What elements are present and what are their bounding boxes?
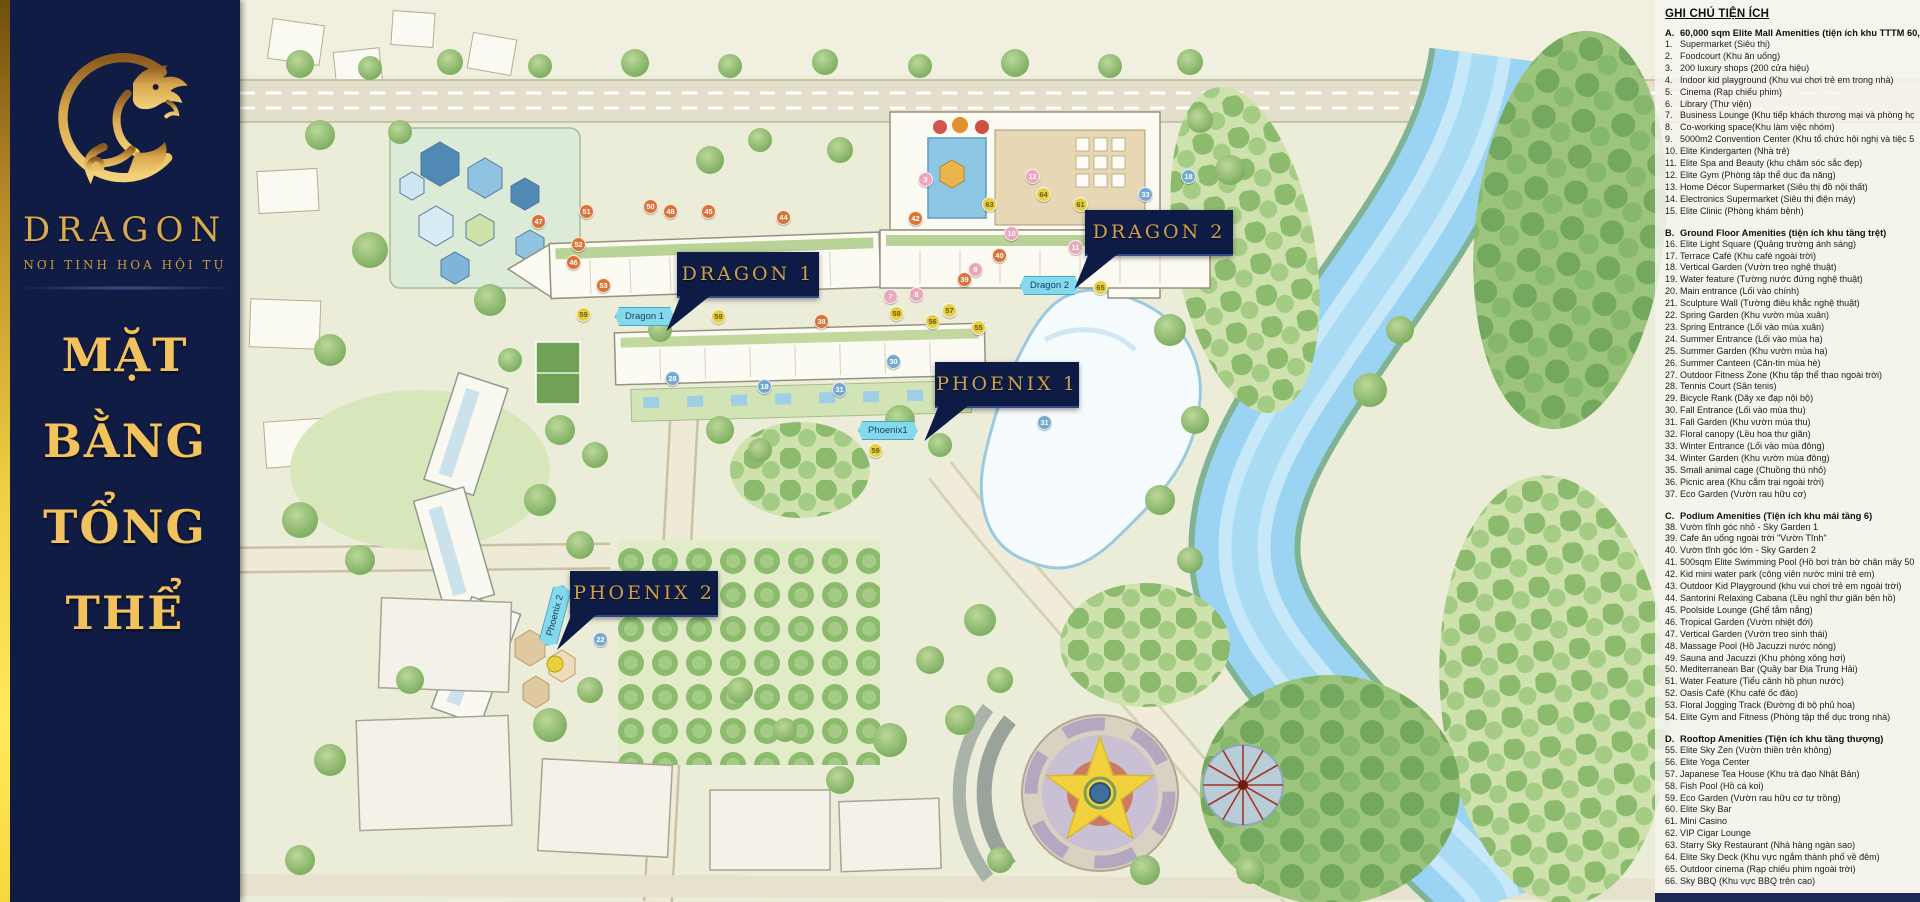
- poster-title-line: MẶT: [62, 332, 189, 378]
- legend-section-heading: B.Ground Floor Amenities (tiện ích khu t…: [1665, 227, 1914, 239]
- amenity-marker-40: 40: [992, 248, 1007, 263]
- amenity-marker-47: 47: [531, 214, 546, 229]
- amenity-marker-53: 53: [596, 278, 611, 293]
- legend-item: 45.Poolside Lounge (Ghế tắm nắng): [1665, 605, 1914, 617]
- poster-title-line: THỂ: [66, 590, 185, 636]
- legend-item: 8.Co-working space(Khu làm việc nhóm): [1665, 122, 1914, 134]
- legend-item: 10.Elite Kindergarten (Nhà trẻ): [1665, 146, 1914, 158]
- legend-item: 4.Indoor kid playground (Khu vui chơi tr…: [1665, 75, 1914, 87]
- legend-item: 18.Vertical Garden (Vườn treo nghệ thuật…: [1665, 262, 1914, 274]
- legend-sections: A.60,000 sqm Elite Mall Amenities (tiện …: [1665, 27, 1914, 888]
- map-label-banner-dragon-2: DRAGON 2: [1085, 210, 1233, 256]
- legend-section: D.Rooftop Amenities (Tiện ích khu tầng t…: [1665, 733, 1914, 888]
- amenity-marker-10: 10: [1004, 226, 1019, 241]
- legend-item: 17.Terrace Café (Khu café ngoài trời): [1665, 251, 1914, 263]
- amenity-marker-59: 59: [711, 309, 726, 324]
- legend-section: C.Podium Amenities (Tiện ích khu mái tần…: [1665, 510, 1914, 724]
- amenity-marker-48: 48: [663, 204, 678, 219]
- legend-section: B.Ground Floor Amenities (tiện ích khu t…: [1665, 227, 1914, 501]
- banner-text: DRAGON 2: [1093, 221, 1226, 243]
- legend-item: 46.Tropical Garden (Vườn nhiệt đới): [1665, 617, 1914, 629]
- legend-item: 6.Library (Thư viện): [1665, 99, 1914, 111]
- masterplan-poster: DRAGON 1 DRAGON 2 PHOENIX 1 PHOENIX 2 Dr…: [0, 0, 1920, 902]
- brand-name: DRAGON: [23, 210, 227, 250]
- legend-item: 63.Starry Sky Restaurant (Nhà hàng ngàn …: [1665, 840, 1914, 852]
- poster-title: MẶT BẰNG TỔNG THỂ: [43, 332, 207, 636]
- legend-item: 41.500sqm Elite Swimming Pool (Hồ bơi tr…: [1665, 557, 1914, 569]
- legend-title: GHI CHÚ TIỆN ÍCH: [1665, 8, 1914, 20]
- legend-item: 43.Outdoor Kid Playground (khu vui chơi …: [1665, 581, 1914, 593]
- amenity-marker-46: 46: [566, 255, 581, 270]
- legend-item: 28.Tennis Court (Sân tenis): [1665, 381, 1914, 393]
- legend-section-heading: C.Podium Amenities (Tiện ích khu mái tần…: [1665, 510, 1914, 522]
- legend-item: 3.200 luxury shops (200 cửa hiệu): [1665, 63, 1914, 75]
- legend-item: 32.Floral canopy (Lều hoa thư giãn): [1665, 429, 1914, 441]
- legend-item: 19.Water feature (Tường nước đứng nghệ t…: [1665, 274, 1914, 286]
- amenity-marker-56: 56: [925, 314, 940, 329]
- legend-panel: GHI CHÚ TIỆN ÍCH A.60,000 sqm Elite Mall…: [1655, 0, 1920, 902]
- amenity-marker-39: 39: [957, 272, 972, 287]
- legend-section: A.60,000 sqm Elite Mall Amenities (tiện …: [1665, 27, 1914, 218]
- legend-item: 49.Sauna and Jacuzzi (Khu phòng xông hơi…: [1665, 653, 1914, 665]
- legend-item: 56.Elite Yoga Center: [1665, 757, 1914, 769]
- legend-item: 60.Elite Sky Bar: [1665, 804, 1914, 816]
- amenity-marker-59: 59: [576, 307, 591, 322]
- amenity-marker-18: 18: [757, 379, 772, 394]
- legend-item: 31.Fall Garden (Khu vườn mùa thu): [1665, 417, 1914, 429]
- legend-item: 38.Vườn tĩnh góc nhỏ - Sky Garden 1: [1665, 522, 1914, 534]
- legend-item: 24.Summer Entrance (Lối vào mùa hạ): [1665, 334, 1914, 346]
- legend-item: 9.5000m2 Convention Center (Khu tổ chức …: [1665, 134, 1914, 146]
- legend-item: 44.Santorini Relaxing Cabana (Lều nghỉ t…: [1665, 593, 1914, 605]
- legend-item: 59.Eco Garden (Vườn rau hữu cơ tự trồng): [1665, 793, 1914, 805]
- amenity-marker-58: 58: [889, 306, 904, 321]
- sidebar: DRAGON NƠI TINH HOA HỘI TỤ MẶT BẰNG TỔNG…: [0, 0, 240, 902]
- legend-item: 14.Electronics Supermarket (Siêu thị điệ…: [1665, 194, 1914, 206]
- legend-item: 37.Eco Garden (Vườn rau hữu cơ): [1665, 489, 1914, 501]
- amenity-marker-31: 31: [832, 382, 847, 397]
- legend-item: 34.Winter Garden (Khu vườn mùa đông): [1665, 453, 1914, 465]
- legend-item: 30.Fall Entrance (Lối vào mùa thu): [1665, 405, 1914, 417]
- amenity-marker-12: 12: [1025, 169, 1040, 184]
- legend-item: 54.Elite Gym and Fitness (Phòng tập thể …: [1665, 712, 1914, 724]
- amenity-marker-55: 55: [971, 320, 986, 335]
- amenity-marker-22: 22: [593, 632, 608, 647]
- legend-item: 57.Japanese Tea House (Khu trà đạo Nhật …: [1665, 769, 1914, 781]
- amenity-marker-31: 31: [1037, 415, 1052, 430]
- building-tag-dragon-2: Dragon 2: [1020, 276, 1079, 295]
- legend-item: 55.Elite Sky Zen (Vườn thiền trên không): [1665, 745, 1914, 757]
- legend-item: 33.Winter Entrance (Lối vào mùa đông): [1665, 441, 1914, 453]
- amenity-marker-63: 63: [982, 197, 997, 212]
- amenity-marker-33: 33: [1138, 187, 1153, 202]
- legend-item: 40.Vườn tĩnh góc lớn - Sky Garden 2: [1665, 545, 1914, 557]
- poster-title-line: TỔNG: [43, 504, 207, 550]
- legend-item: 2.Foodcourt (Khu ăn uống): [1665, 51, 1914, 63]
- legend-item: 51.Water Feature (Tiểu cảnh hồ phun nước…: [1665, 676, 1914, 688]
- amenity-marker-18: 18: [1181, 169, 1196, 184]
- amenity-marker-59: 59: [868, 443, 883, 458]
- amenity-marker-45: 45: [701, 204, 716, 219]
- legend-item: 39.Cafe ăn uống ngoài trời "Vườn Tĩnh": [1665, 533, 1914, 545]
- legend-item: 61.Mini Casino: [1665, 816, 1914, 828]
- legend-item: 20.Main entrance (Lối vào chính): [1665, 286, 1914, 298]
- dragon-logo-icon: [45, 38, 205, 208]
- banner-text: PHOENIX 1: [936, 373, 1078, 395]
- poster-title-line: BẰNG: [43, 418, 207, 464]
- map-label-banner-phoenix-1: PHOENIX 1: [935, 362, 1079, 408]
- legend-item: 50.Mediterranean Bar (Quầy bar Địa Trung…: [1665, 664, 1914, 676]
- legend-item: 66.Sky BBQ (Khu vực BBQ trên cao): [1665, 876, 1914, 888]
- amenity-marker-64: 64: [1036, 187, 1051, 202]
- legend-section-heading: D.Rooftop Amenities (Tiện ích khu tầng t…: [1665, 733, 1914, 745]
- legend-item: 35.Small animal cage (Chuồng thú nhỏ): [1665, 465, 1914, 477]
- legend-item: 23.Spring Entrance (Lối vào mùa xuân): [1665, 322, 1914, 334]
- legend-item: 64.Elite Sky Deck (Khu vực ngắm thành ph…: [1665, 852, 1914, 864]
- legend-item: 47.Vertical Garden (Vườn treo sinh thái): [1665, 629, 1914, 641]
- banner-text: PHOENIX 2: [573, 582, 715, 604]
- legend-item: 7.Business Lounge (Khu tiếp khách thương…: [1665, 110, 1914, 122]
- legend-item: 21.Sculpture Wall (Tường điêu khắc nghệ …: [1665, 298, 1914, 310]
- legend-item: 25.Summer Garden (Khu vườn mùa hạ): [1665, 346, 1914, 358]
- brand-tagline: NƠI TINH HOA HỘI TỤ: [23, 258, 226, 272]
- legend-item: 27.Outdoor Fitness Zone (Khu tập thể tha…: [1665, 370, 1914, 382]
- legend-item: 29.Bicycle Rank (Dãy xe đạp nội bộ): [1665, 393, 1914, 405]
- amenity-marker-38: 38: [814, 314, 829, 329]
- amenity-marker-8: 8: [909, 287, 924, 302]
- legend-section-heading: A.60,000 sqm Elite Mall Amenities (tiện …: [1665, 27, 1914, 39]
- legend-item: 26.Summer Canteen (Căn-tin mùa hè): [1665, 358, 1914, 370]
- legend-item: 48.Massage Pool (Hồ Jacuzzi nước nóng): [1665, 641, 1914, 653]
- legend-item: 16.Elite Light Square (Quảng trường ánh …: [1665, 239, 1914, 251]
- amenity-marker-52: 52: [571, 237, 586, 252]
- map-label-banner-dragon-1: DRAGON 1: [677, 252, 819, 298]
- legend-item: 12.Elite Gym (Phòng tập thể dục đa năng): [1665, 170, 1914, 182]
- sidebar-divider: [20, 286, 230, 290]
- legend-item: 36.Picnic area (Khu cắm trại ngoài trời): [1665, 477, 1914, 489]
- amenity-marker-57: 57: [942, 303, 957, 318]
- map-label-banner-phoenix-2: PHOENIX 2: [570, 571, 718, 617]
- legend-item: 13.Home Décor Supermarket (Siêu thị đồ n…: [1665, 182, 1914, 194]
- amenity-marker-51: 51: [579, 204, 594, 219]
- legend-item: 22.Spring Garden (Khu vườn mùa xuân): [1665, 310, 1914, 322]
- legend-item: 1.Supermarket (Siêu thị): [1665, 39, 1914, 51]
- amenity-marker-42: 42: [908, 211, 923, 226]
- amenity-marker-3: 3: [918, 172, 933, 187]
- legend-item: 5.Cinema (Rạp chiếu phim): [1665, 87, 1914, 99]
- amenity-marker-7: 7: [883, 289, 898, 304]
- amenity-marker-44: 44: [776, 210, 791, 225]
- legend-item: 62.VIP Cigar Lounge: [1665, 828, 1914, 840]
- amenity-marker-11: 11: [1068, 240, 1083, 255]
- legend-item: 42.Kid mini water park (công viên nước m…: [1665, 569, 1914, 581]
- legend-item: 65.Outdoor cinema (Rạp chiếu phim ngoài …: [1665, 864, 1914, 876]
- amenity-marker-28: 28: [665, 371, 680, 386]
- building-tag-dragon-1: Dragon 1: [615, 307, 674, 326]
- amenity-marker-50: 50: [643, 199, 658, 214]
- legend-item: 15.Elite Clinic (Phòng khám bệnh): [1665, 206, 1914, 218]
- gold-accent-strip: [0, 0, 10, 902]
- legend-item: 53.Floral Jogging Track (Đường đi bộ phủ…: [1665, 700, 1914, 712]
- legend-item: 58.Fish Pool (Hồ cá koi): [1665, 781, 1914, 793]
- legend-item: 52.Oasis Café (Khu café ốc đảo): [1665, 688, 1914, 700]
- banner-text: DRAGON 1: [682, 263, 815, 285]
- building-tag-phoenix-1: Phoenix1: [858, 421, 918, 440]
- legend-item: 11.Elite Spa and Beauty (khu chăm sóc sắ…: [1665, 158, 1914, 170]
- amenity-marker-30: 30: [886, 354, 901, 369]
- legend-bottom-bar: [1655, 893, 1920, 902]
